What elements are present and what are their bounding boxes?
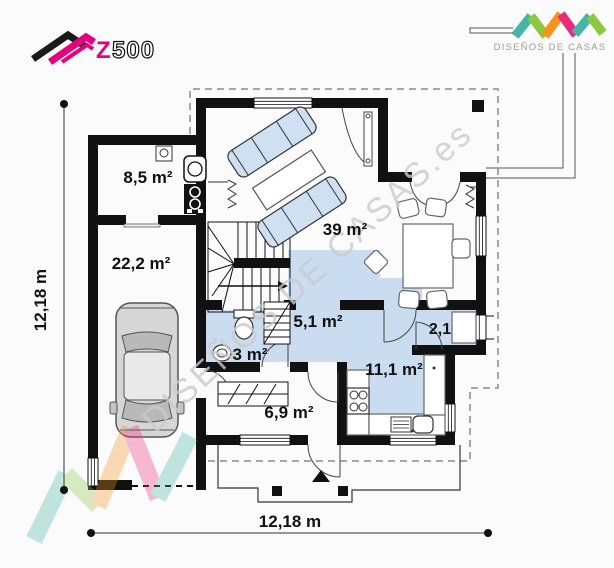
dining-table (403, 224, 453, 288)
dimension-label-vertical: 12,18 m (31, 269, 50, 331)
floor-plan-page: Z 500 DISEÑOS DE CASAS (0, 0, 614, 568)
window-garage-left (88, 458, 98, 486)
room-label-living: 39 m² (323, 220, 368, 239)
logo-house-icon (590, 16, 603, 33)
entrance-arrow (312, 470, 330, 482)
entrance-door (308, 445, 340, 477)
window-kitchen-bottom (390, 435, 436, 445)
disenos-logo-text: DISEÑOS DE CASAS (494, 42, 607, 53)
stove (347, 388, 369, 414)
dining-chair (426, 290, 448, 309)
room-label-utility: 8,5 m² (123, 168, 172, 187)
floor-plan-drawing: Z 500 DISEÑOS DE CASAS (0, 0, 614, 568)
room-label-garage: 22,2 m² (112, 254, 171, 273)
entrance-porch (218, 445, 460, 502)
radiator-living-left (208, 180, 236, 208)
window-kitchen-right (445, 404, 455, 432)
z500-logo: Z 500 (33, 35, 155, 64)
window-dining-right (476, 216, 486, 256)
window-pantry-right (476, 315, 494, 340)
window-living-top (254, 98, 312, 108)
boiler-unit (184, 156, 206, 214)
dining-chair (398, 290, 419, 309)
counter-dot (433, 367, 436, 370)
car-mirror (110, 402, 117, 414)
z500-logo-500: 500 (112, 37, 155, 64)
dimension-label-horizontal: 12,18 m (259, 512, 321, 531)
radiator-dining-right (466, 185, 476, 208)
window-vestibule-bottom (240, 435, 290, 445)
utility-sliding-door (124, 224, 160, 227)
room-label-bathroom: 3 m² (233, 345, 268, 364)
pantry-appliance (452, 312, 476, 343)
utility-sink (156, 146, 172, 161)
dining-chair (452, 239, 470, 258)
dimension-horizontal: 12,18 m (87, 512, 492, 537)
room-label-pantry: 2,1 (429, 321, 451, 338)
porch-pillar (338, 486, 348, 496)
watermark-logo (34, 428, 190, 540)
kitchen-counter-right (424, 355, 445, 415)
terrace-pillar (472, 100, 484, 112)
hall-vestibule-door (308, 372, 338, 402)
terrace-door-open-leaf (342, 108, 372, 166)
room-label-vestibule: 6,9 m² (264, 403, 313, 422)
dining-chair (425, 198, 447, 218)
room-label-kitchen: 11,1 m² (365, 360, 423, 379)
porch-pillar (272, 486, 282, 496)
z500-logo-z: Z (96, 37, 111, 64)
room-label-hall: 5,1 m² (293, 312, 342, 331)
dimension-vertical: 12,18 m (31, 100, 68, 494)
